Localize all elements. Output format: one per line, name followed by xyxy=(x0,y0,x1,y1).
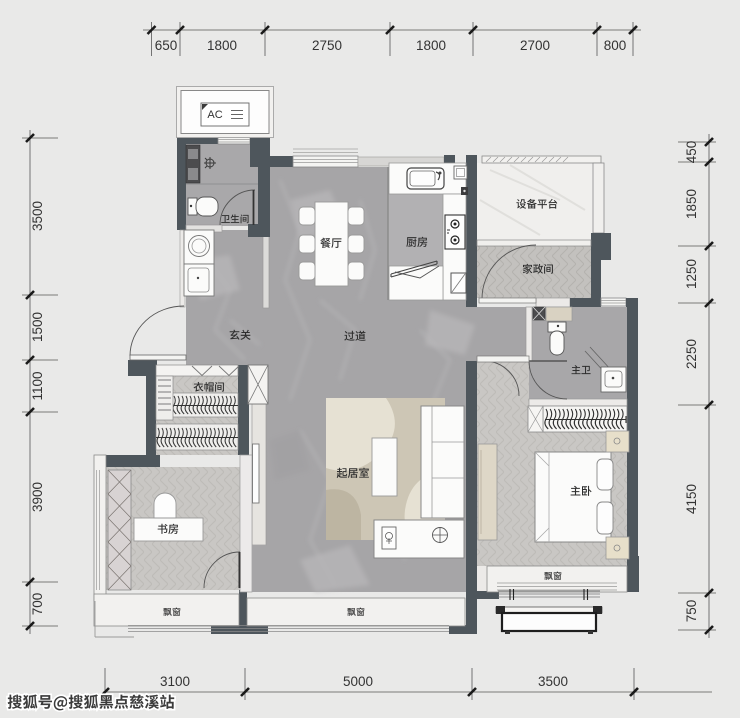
svg-text:1250: 1250 xyxy=(684,259,699,289)
svg-text:3500: 3500 xyxy=(30,201,45,231)
svg-text:1800: 1800 xyxy=(207,38,237,53)
svg-text:650: 650 xyxy=(155,38,178,53)
svg-text:450: 450 xyxy=(684,141,699,164)
svg-text:700: 700 xyxy=(30,593,45,616)
svg-text:1500: 1500 xyxy=(30,312,45,342)
svg-text:1850: 1850 xyxy=(684,189,699,219)
svg-text:3900: 3900 xyxy=(30,482,45,512)
svg-text:3500: 3500 xyxy=(538,674,568,689)
svg-text:2700: 2700 xyxy=(520,38,550,53)
svg-text:AC: AC xyxy=(207,109,222,121)
svg-text:3100: 3100 xyxy=(160,674,190,689)
svg-text:5000: 5000 xyxy=(343,674,373,689)
svg-text:2750: 2750 xyxy=(312,38,342,53)
svg-text:1800: 1800 xyxy=(416,38,446,53)
svg-text:800: 800 xyxy=(604,38,627,53)
svg-text:1100: 1100 xyxy=(30,371,45,400)
svg-text:750: 750 xyxy=(684,600,699,623)
svg-text:4150: 4150 xyxy=(684,484,699,514)
svg-text:2250: 2250 xyxy=(684,339,699,369)
